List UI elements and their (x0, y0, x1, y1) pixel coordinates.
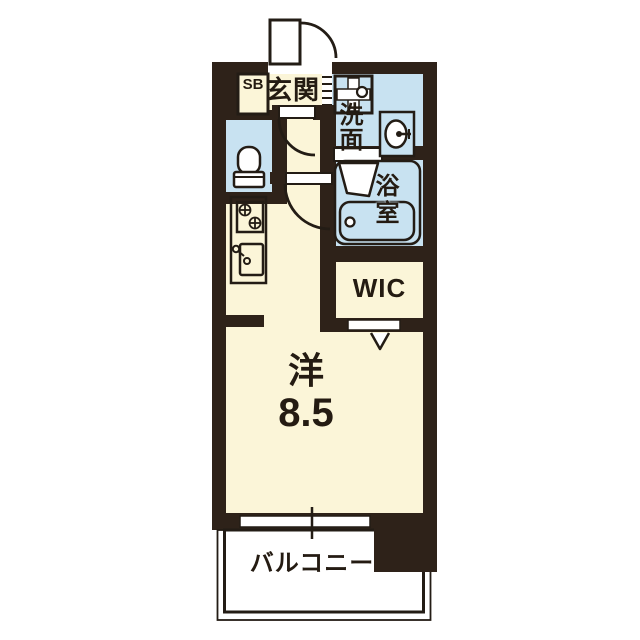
floor-plan: SB 玄関 洗面 浴室 WIC 洋 8.5 バルコニー (0, 0, 640, 640)
room-door-frame (286, 173, 332, 184)
wic-label: WIC (336, 275, 423, 302)
entrance-door-arc (301, 23, 336, 58)
wash-basin-icon (380, 112, 414, 156)
toilet-icon (234, 147, 264, 187)
entrance-label: 玄関 (262, 77, 324, 104)
bathroom-label: 浴室 (374, 173, 401, 227)
wic-door-frame (348, 320, 400, 330)
hall-door-frame (279, 106, 315, 118)
balcony-label: バルコニー (222, 551, 402, 576)
main-room-size: 8.5 (256, 392, 356, 434)
sliding-window-icon (240, 516, 370, 527)
bathtub-drain (346, 218, 355, 227)
washroom-label: 洗面 (338, 103, 365, 153)
main-room-floor-left (226, 184, 320, 513)
entrance-door-icon (270, 20, 300, 64)
main-room-label: 洋 (256, 352, 356, 390)
